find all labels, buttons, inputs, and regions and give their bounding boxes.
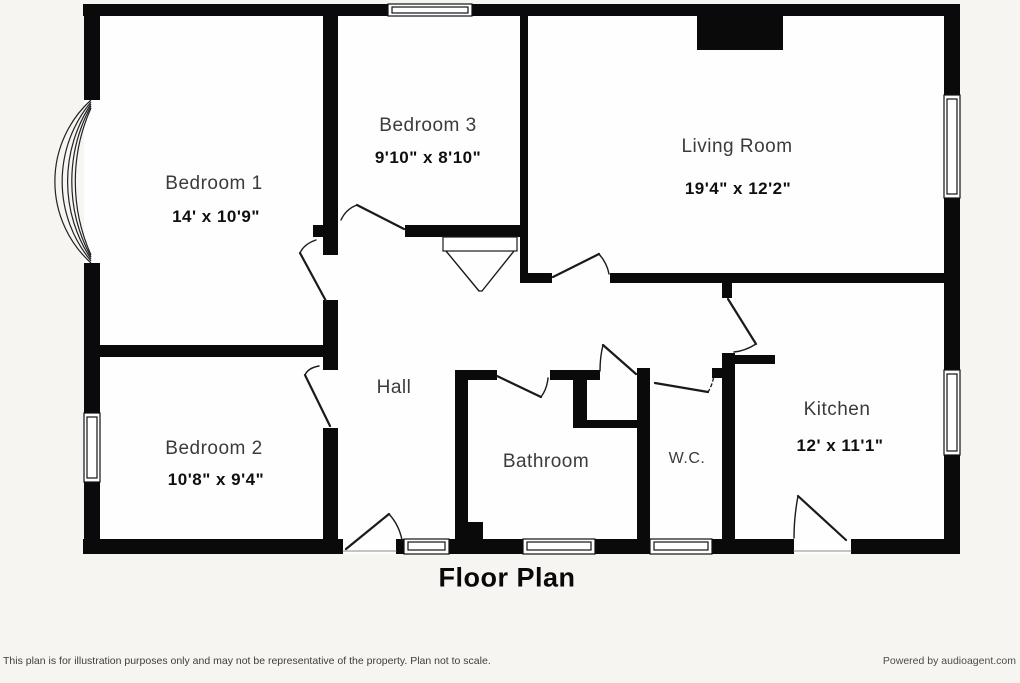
window-hall	[404, 539, 449, 554]
room-label-bathroom: Bathroom	[503, 451, 589, 473]
chimney-breast	[697, 16, 783, 50]
disclaimer-text: This plan is for illustration purposes o…	[3, 655, 491, 667]
window-kitchen	[944, 370, 960, 455]
room-label-living-room: Living Room	[681, 136, 792, 158]
room-dims-bedroom1: 14' x 10'9"	[172, 207, 260, 227]
room-dims-kitchen: 12' x 11'1"	[797, 436, 884, 456]
window-bedroom2	[84, 413, 100, 482]
floor-plan-page: Bedroom 1 14' x 10'9" Bedroom 3 9'10" x …	[0, 0, 1020, 683]
room-label-bedroom2: Bedroom 2	[165, 438, 262, 460]
window-bathroom	[523, 539, 595, 554]
page-title: Floor Plan	[438, 563, 575, 594]
room-dims-bedroom2: 10'8" x 9'4"	[168, 470, 264, 490]
credit-text: Powered by audioagent.com	[883, 655, 1016, 667]
room-label-bedroom1: Bedroom 1	[165, 173, 262, 195]
room-label-wc: W.C.	[669, 450, 706, 468]
room-dims-bedroom3: 9'10" x 8'10"	[375, 148, 481, 168]
window-wc	[650, 539, 712, 554]
room-label-hall: Hall	[377, 377, 412, 399]
room-dims-living-room: 19'4" x 12'2"	[685, 179, 791, 199]
room-label-bedroom3: Bedroom 3	[379, 115, 476, 137]
window-bedroom3	[388, 4, 472, 16]
room-label-kitchen: Kitchen	[804, 399, 871, 421]
window-living-room	[944, 95, 960, 198]
